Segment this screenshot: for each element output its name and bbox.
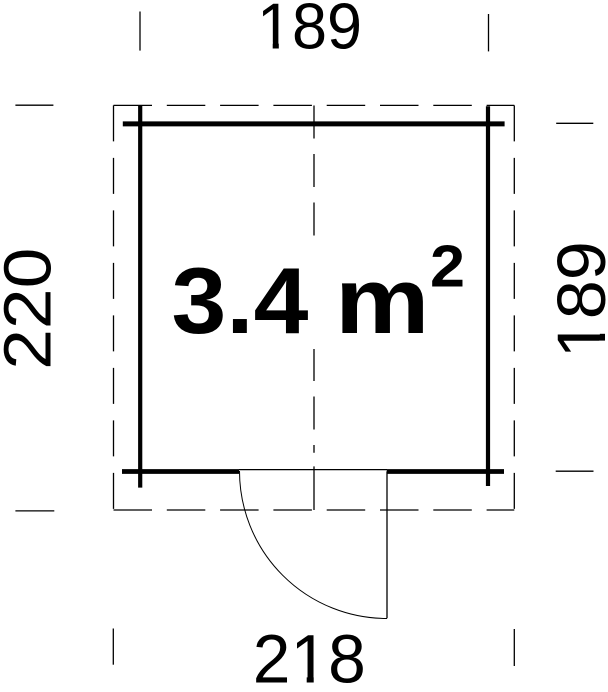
- svg-text:189: 189: [257, 0, 362, 62]
- svg-text:2: 2: [430, 233, 465, 300]
- svg-text:220: 220: [0, 248, 65, 370]
- svg-text:3.4: 3.4: [172, 248, 309, 353]
- svg-text:218: 218: [253, 620, 366, 687]
- svg-text:189: 189: [543, 241, 608, 358]
- svg-text:m: m: [335, 248, 430, 353]
